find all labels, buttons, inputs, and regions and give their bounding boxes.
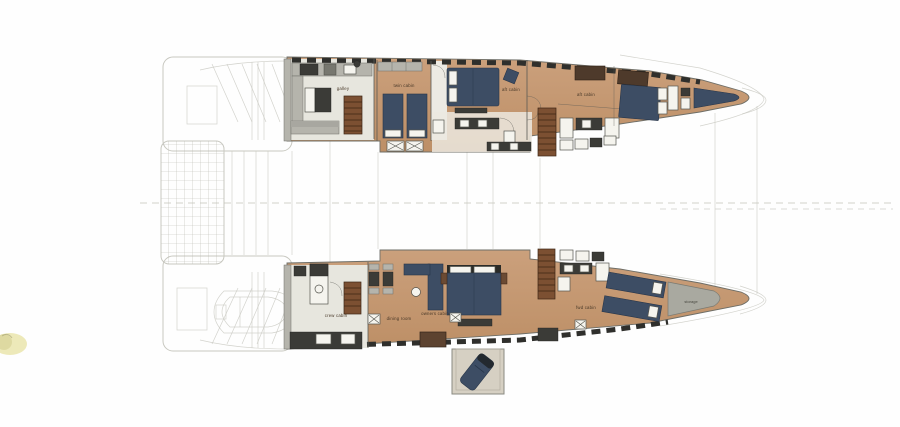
galley-stairs [344,96,362,134]
tender-bay [452,349,504,394]
label-aft-cabin-1: aft cabin [502,87,520,92]
companionway-stairs-lower [538,249,555,299]
toilet-icon [558,277,570,291]
label-dining-room: dining room [387,316,412,321]
deck-plan-svg: galley twin cabin aft cabin aft cabin cr… [0,0,900,427]
label-aft-cabin-2: aft cabin [577,92,595,97]
crew-stairs [344,282,361,314]
deck-hatch-lower [177,288,207,330]
lower-hull [284,249,749,394]
table [369,272,379,286]
sink-icon [580,265,589,272]
sink-icon [582,120,591,128]
swim-platform-grid [161,141,224,264]
label-owners-cabin: owners cabin [421,311,449,316]
wardrobe [617,70,648,87]
edge-artifact [0,333,27,355]
catamaran-deck-plan: galley twin cabin aft cabin aft cabin cr… [0,0,900,427]
toilet-icon [433,120,444,133]
sink-icon [478,120,487,127]
tv-bench [458,319,492,326]
sink-icon [341,334,355,344]
deck-hatch-upper [187,86,217,124]
toilet-icon [504,131,515,143]
galley-island [315,88,331,112]
sofa [404,264,430,275]
toilet-icon [681,98,690,109]
fwd-bed [619,84,662,120]
sink-icon [564,265,573,272]
label-galley: galley [337,86,350,91]
wardrobe [575,66,605,80]
wardrobe [668,86,678,110]
sink-icon [460,120,469,127]
desk [420,332,446,347]
sink-icon [316,334,331,344]
companionway-stairs-upper [538,108,556,156]
label-storage: storage [684,299,698,304]
washer [310,264,328,276]
galley-sink [344,65,356,74]
galley-range [300,64,318,75]
upper-hull [284,57,749,156]
label-crew-cabin: crew cabin [325,313,348,318]
table [383,272,393,286]
label-twin-cabin: twin cabin [393,83,415,88]
coffee-table [412,288,421,297]
label-fwd-cabin: fwd cabin [576,305,596,310]
